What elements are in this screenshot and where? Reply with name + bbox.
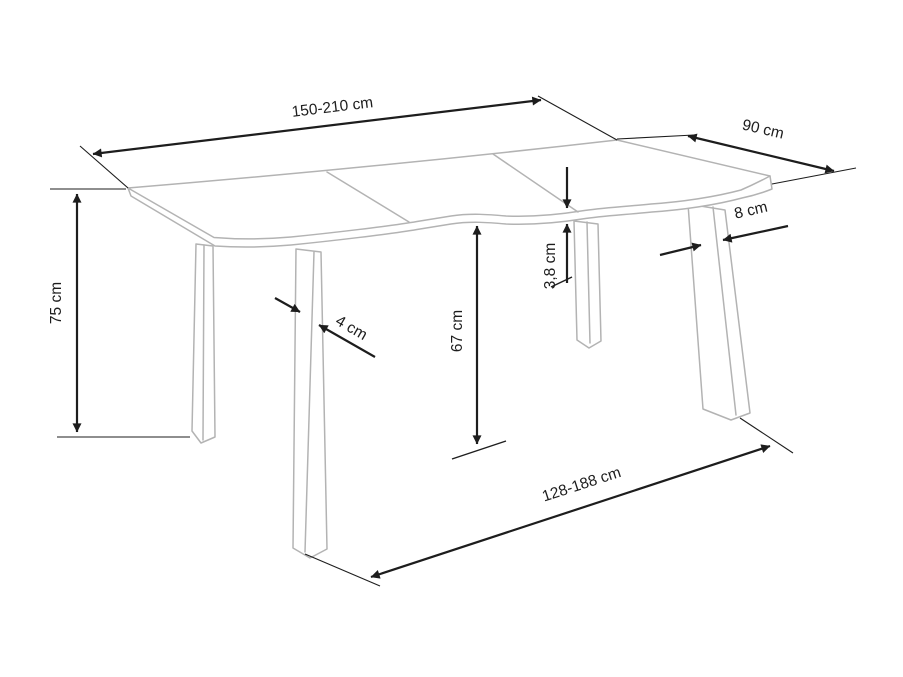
dimension-height-label: 75 cm: [48, 282, 65, 324]
dimension-top-thickness-label: 3,8 cm: [542, 243, 559, 290]
dimension-length-label: 150-210 cm: [291, 94, 374, 121]
table-leg-rear-left: [192, 244, 215, 443]
diagram-page: 150-210 cm 90 cm 75 cm 67 cm 3,8 cm: [0, 0, 903, 677]
table-dimension-diagram: 150-210 cm 90 cm 75 cm 67 cm 3,8 cm: [0, 0, 903, 677]
tabletop: [128, 140, 772, 247]
table-leg-front-left: [293, 249, 327, 558]
dimension-front-leg-width-label: 8 cm: [733, 199, 770, 223]
dimension-underside-height: 67 cm: [449, 226, 506, 459]
dimension-underside-height-label: 67 cm: [449, 310, 466, 352]
dimension-depth-label: 90 cm: [741, 117, 786, 143]
dimension-side-leg-width-label: 4 cm: [332, 312, 370, 344]
dimension-leg-span: 128-188 cm: [305, 418, 793, 586]
dimension-side-leg-width: 4 cm: [275, 298, 375, 357]
table-leg-rear-right: [574, 221, 601, 348]
dimension-height: 75 cm: [48, 189, 190, 437]
